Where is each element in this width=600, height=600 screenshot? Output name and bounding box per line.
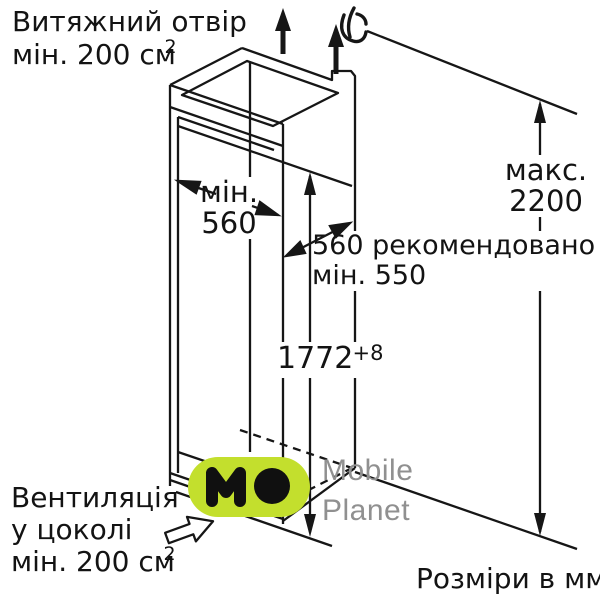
depth-label: 560 рекомендовано мін. 550 xyxy=(312,231,595,291)
max-height-prefix: макс. xyxy=(497,155,595,186)
vent-line2: у цоколі xyxy=(11,514,179,546)
superscript-2: 2 xyxy=(163,543,175,565)
exhaust-opening-line1: Витяжний отвір xyxy=(12,5,247,38)
exhaust-opening-line2: мін. 200 см2 xyxy=(12,38,247,75)
niche-width-value: 560 xyxy=(193,208,265,239)
niche-width-label: мін. 560 xyxy=(193,177,265,239)
brand-line1: Mobile xyxy=(322,451,413,491)
front-top-edge xyxy=(170,85,283,124)
watermark-brand-text: Mobile Planet xyxy=(322,451,413,531)
units-note: Розміри в мм xyxy=(416,562,600,595)
niche-height-tolerance: +8 xyxy=(353,341,384,365)
vent-line3: мін. 200 см2 xyxy=(11,546,179,581)
mobile-planet-logo xyxy=(188,457,310,517)
niche-height-label: 1772+8 xyxy=(277,342,384,378)
depth-minimum: мін. 550 xyxy=(312,261,595,291)
depth-recommended: 560 рекомендовано xyxy=(312,231,595,261)
installation-diagram: Витяжний отвір мін. 200 см2 мін. 560 560… xyxy=(0,0,600,600)
max-height-value: 2200 xyxy=(497,186,595,217)
brand-line2: Planet xyxy=(322,491,413,531)
plinth-ventilation-label: Вентиляція у цоколі мін. 200 см2 xyxy=(11,482,179,581)
mo-logo-glyphs xyxy=(188,457,310,517)
logo-letter-o-dot xyxy=(254,468,290,504)
exhaust-opening-label: Витяжний отвір мін. 200 см2 xyxy=(12,5,247,75)
niche-width-min: мін. xyxy=(193,177,265,208)
vent-line1: Вентиляція xyxy=(11,482,179,514)
max-height-label: макс. 2200 xyxy=(497,155,595,217)
superscript-2: 2 xyxy=(164,36,176,58)
ceiling-extension-line xyxy=(367,31,577,114)
top-rail-outer-line xyxy=(170,107,283,146)
logo-letter-m xyxy=(212,473,240,501)
niche-height-value: 1772 xyxy=(277,341,353,376)
